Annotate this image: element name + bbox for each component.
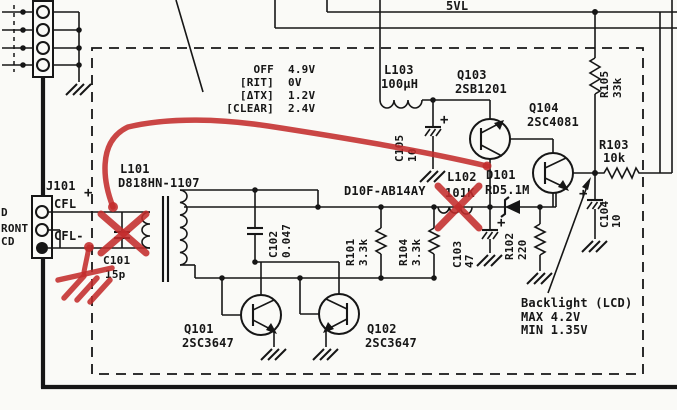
r103-ref: R103 — [599, 138, 629, 152]
r102-value: 220 — [516, 240, 529, 260]
cfl-plus-label: CFL — [54, 197, 76, 211]
resistor-r104: R104 3.3k — [397, 207, 439, 278]
voltage-row-value: 4.9V — [288, 63, 315, 76]
svg-text:RONT: RONT — [1, 222, 28, 235]
r104-value: 3.3k — [410, 239, 423, 266]
l103-value: 100µH — [381, 77, 418, 91]
q102-ref: Q102 — [367, 322, 397, 336]
schematic-canvas: 5VL OFF 4.9V [RIT] 0V [ΔTX] 1.2V [CLEAR]… — [0, 0, 677, 410]
cfl-minus-label: CFL- — [54, 229, 84, 243]
top-connector — [2, 1, 91, 95]
voltage-row-value: 0V — [288, 76, 302, 89]
d101-value: RD5.1M — [485, 183, 530, 197]
l103-ref: L103 — [384, 63, 414, 77]
pointer-line — [176, 0, 203, 92]
c103-plus: + — [497, 215, 506, 231]
voltage-row-label: [RIT] — [240, 76, 274, 89]
voltage-row-value: 1.2V — [288, 89, 315, 102]
q101-ref: Q101 — [184, 322, 214, 336]
voltage-row-value: 2.4V — [288, 102, 315, 115]
q101-value: 2SC3647 — [182, 336, 234, 350]
r102-ref: R102 — [503, 233, 516, 260]
backlight-title: Backlight (LCD) — [521, 296, 632, 310]
resistor-r101: R101 3.3k — [344, 207, 386, 278]
red-x-c101 — [101, 214, 146, 253]
q103-ref: Q103 — [457, 68, 487, 82]
backlight-max: MAX 4.2V — [521, 310, 580, 324]
q102-value: 2SC3647 — [365, 336, 417, 350]
r105-ref: R105 — [598, 71, 611, 98]
c103-value: 47 — [463, 254, 476, 268]
j101-ref: J101 — [46, 179, 76, 193]
svg-text:CD: CD — [1, 235, 15, 248]
resistor-r102: R102 220 — [503, 207, 552, 284]
board-border — [41, 75, 677, 388]
r104-ref: R104 — [397, 239, 410, 266]
r105-value: 33k — [611, 77, 624, 98]
d101-ref: D101 — [486, 168, 516, 182]
transistor-q102: Q102 2SC3647 — [300, 262, 417, 360]
voltage-row-label: [CLEAR] — [226, 102, 274, 115]
edge-cut-text: D RONT CD — [1, 206, 28, 248]
q104-ref: Q104 — [529, 101, 559, 115]
l101-ref: L101 — [120, 162, 150, 176]
capacitor-c102: C102 0.047 — [247, 190, 293, 262]
transistor-q101: Q101 2SC3647 — [182, 262, 286, 360]
capacitor-c105: + C105 10 — [393, 100, 449, 182]
cfl-plus-sign: + — [84, 185, 93, 201]
c102-ref: C102 — [267, 231, 280, 258]
backlight-callout: Backlight (LCD) MAX 4.2V MIN 1.35V — [521, 177, 632, 337]
r103-value: 10k — [603, 151, 626, 165]
voltage-row-label: OFF — [254, 63, 274, 76]
capacitor-c103: + C103 47 — [451, 207, 506, 268]
r101-value: 3.3k — [357, 239, 370, 266]
diode-line-part: D10F-AB14AY — [344, 184, 426, 198]
q103-value: 2SB1201 — [455, 82, 507, 96]
backlight-min: MIN 1.35V — [521, 323, 588, 337]
q104-value: 2SC4081 — [527, 115, 579, 129]
svg-text:D: D — [1, 206, 8, 219]
power-rail-label: 5VL — [446, 0, 468, 13]
l102-ref: L102 — [447, 170, 477, 184]
c105-plus: + — [440, 112, 449, 128]
voltage-table: OFF 4.9V [RIT] 0V [ΔTX] 1.2V [CLEAR] 2.4… — [226, 63, 315, 115]
r101-ref: R101 — [344, 239, 357, 266]
c104-value: 10 — [610, 214, 623, 228]
l101-value: D818HN-1107 — [118, 176, 200, 190]
c102-value: 0.047 — [280, 224, 293, 258]
voltage-row-label: [ΔTX] — [240, 89, 274, 102]
c101-ref: C101 — [103, 254, 130, 267]
